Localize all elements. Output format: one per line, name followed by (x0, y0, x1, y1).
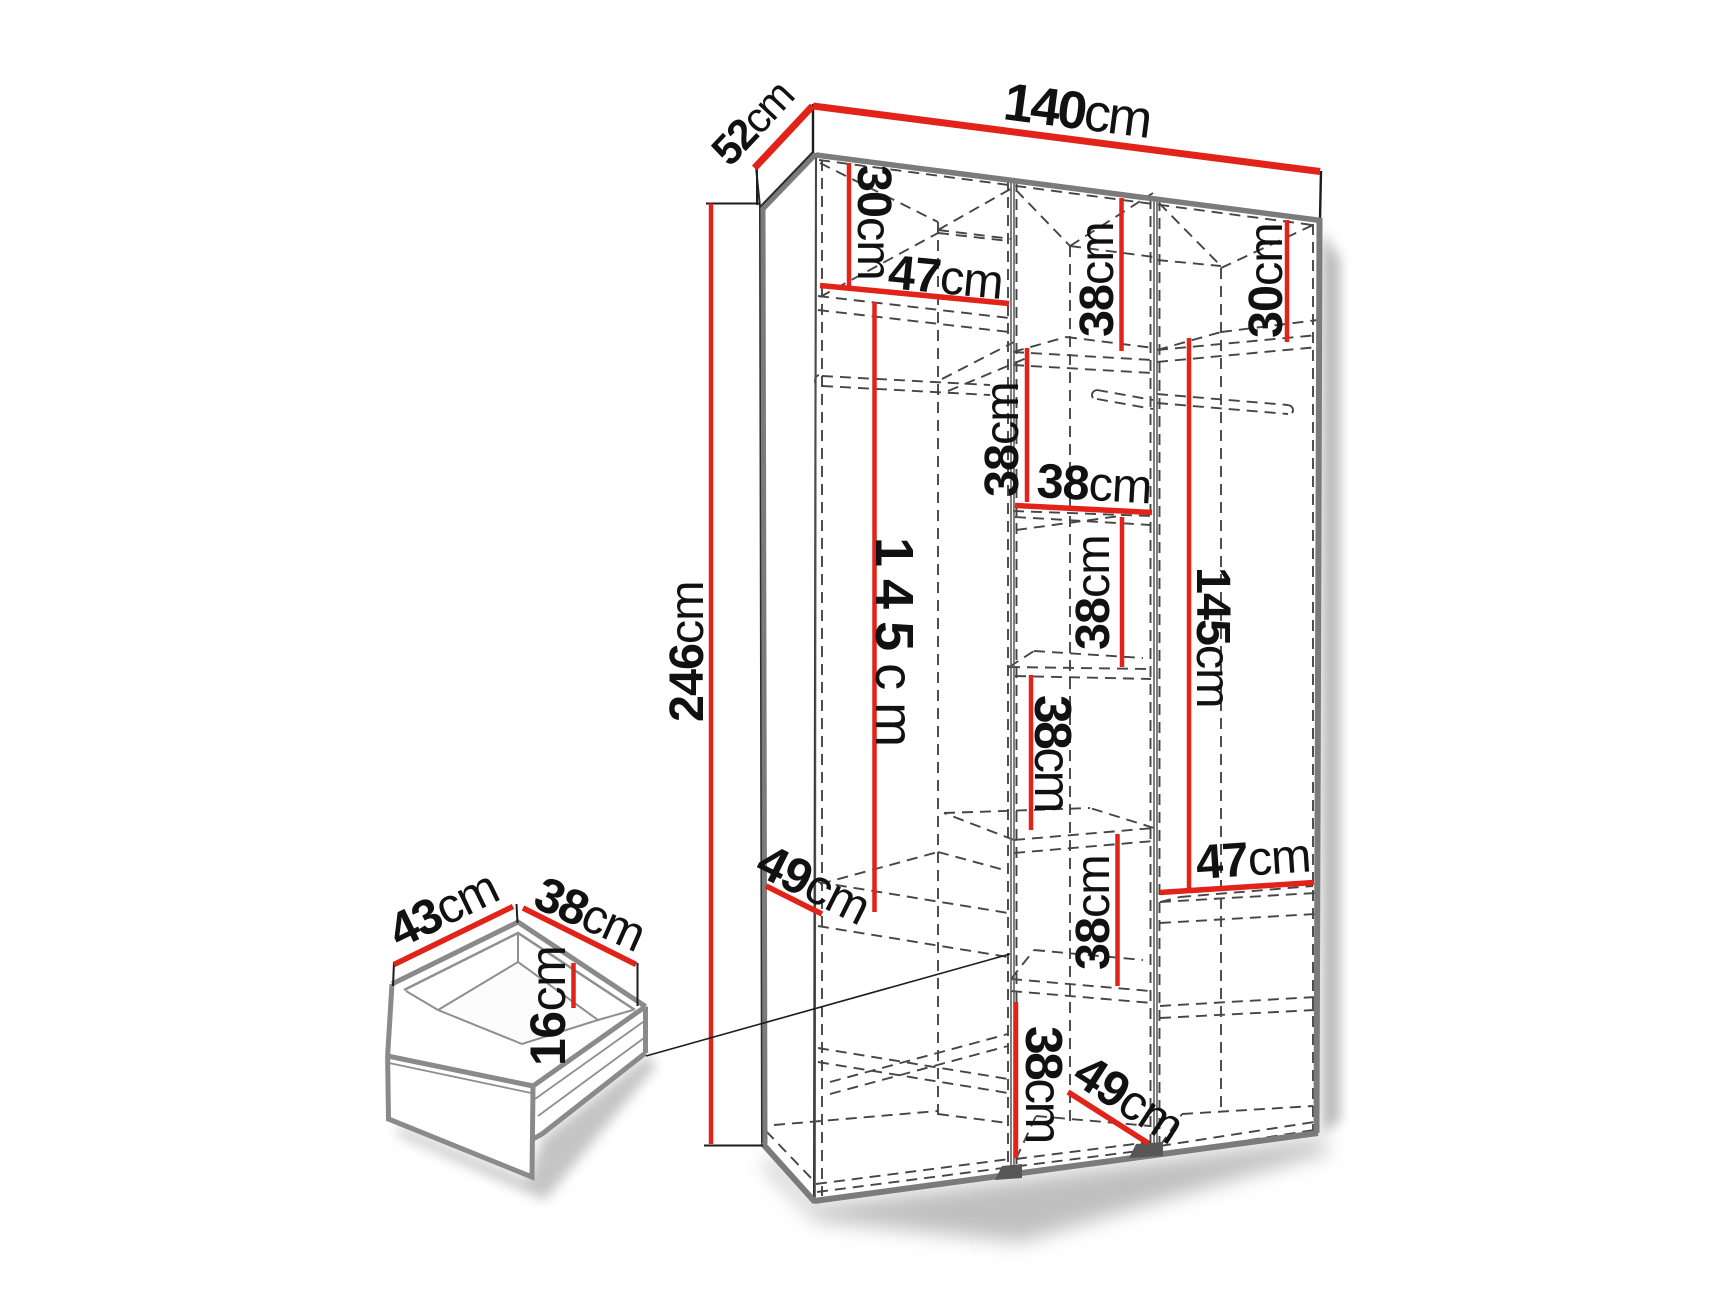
svg-text:38cm: 38cm (1070, 222, 1124, 337)
svg-text:145cm: 145cm (864, 537, 924, 759)
svg-text:38cm: 38cm (975, 382, 1029, 497)
svg-text:38cm: 38cm (1015, 1026, 1073, 1142)
svg-text:47cm: 47cm (1194, 828, 1312, 889)
svg-text:38cm: 38cm (1024, 695, 1082, 811)
svg-text:145cm: 145cm (1186, 567, 1240, 708)
svg-text:30cm: 30cm (1239, 223, 1293, 338)
svg-text:16cm: 16cm (520, 946, 576, 1066)
svg-text:38cm: 38cm (1035, 454, 1152, 514)
svg-text:246cm: 246cm (660, 581, 714, 722)
svg-text:47cm: 47cm (886, 245, 1005, 310)
svg-text:38cm: 38cm (1066, 535, 1120, 650)
svg-text:38cm: 38cm (1066, 855, 1120, 970)
